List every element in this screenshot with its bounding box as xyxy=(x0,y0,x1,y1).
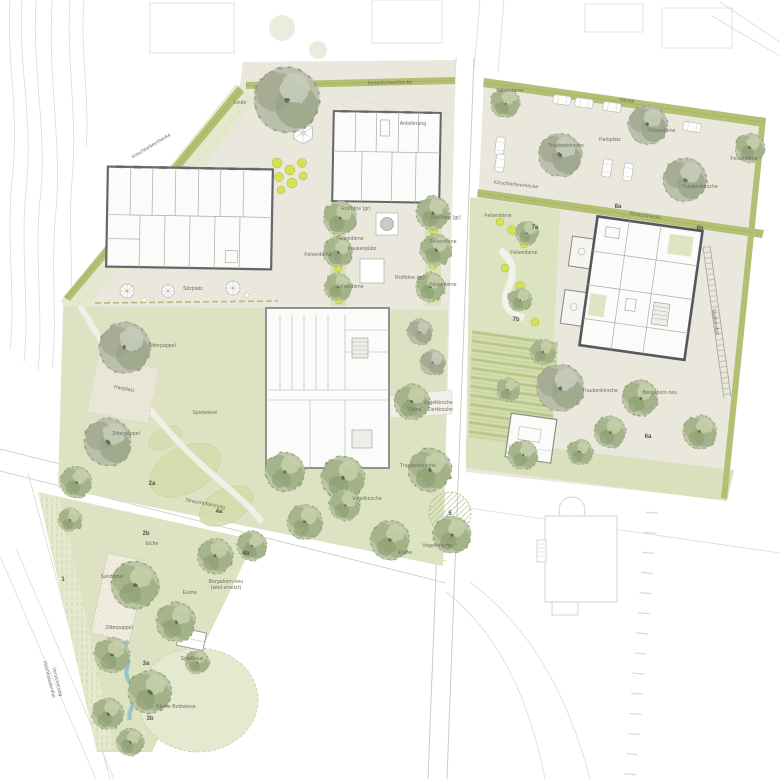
stair-core xyxy=(352,338,368,358)
inner-court-green xyxy=(588,293,607,317)
marker-8b: 8b xyxy=(696,226,703,232)
marker-3b: 3b xyxy=(146,716,153,722)
context-street-line xyxy=(474,0,504,72)
label-bergahorn-2: (wird ersetzt) xyxy=(211,585,242,591)
tree-icon xyxy=(407,319,433,345)
label-felsenbirne: Felsenbirne xyxy=(429,239,456,245)
neighbor-house-outline xyxy=(537,497,617,615)
site-plan-svg: Linde Kirschlorbeerhecke Kirschlorbeerhe… xyxy=(0,0,780,779)
marker-7b: 7b xyxy=(512,317,519,323)
contour-line xyxy=(69,0,74,298)
label-eiche: Eiche xyxy=(145,541,158,547)
tree-icon xyxy=(111,561,159,609)
tree-icon xyxy=(416,196,450,230)
label-zitterpappel: Zitterpappel xyxy=(105,625,133,631)
label-anlieferung: Anlieferung xyxy=(400,121,427,127)
contour-line xyxy=(9,0,14,350)
label-traubenkirsche: Traubenkirsche xyxy=(582,388,618,394)
neighbor-building-outline xyxy=(150,3,234,53)
tree-icon xyxy=(530,339,556,365)
label-felsenbirne: Felsenbirne xyxy=(496,88,523,94)
building-kita-floorplan xyxy=(106,167,273,270)
marker-7a: 7a xyxy=(532,225,539,231)
label-traubenkirsche: Traubenkirsche xyxy=(548,143,584,149)
contour-line xyxy=(21,0,28,362)
context-tree xyxy=(309,41,327,59)
label-felsenbirne: Felsenbirne xyxy=(510,250,537,256)
label-felsenbirne: Felsenbirne xyxy=(429,282,456,288)
play-dot xyxy=(245,293,249,297)
label-bergahorn: Bergahorn neu xyxy=(643,390,678,396)
label-esche: Esche xyxy=(398,550,413,556)
label-felsenbirne: Felsenbirne xyxy=(648,128,675,134)
label-felsenbirne: Felsenbirne xyxy=(730,156,757,162)
context-street-line xyxy=(468,508,780,553)
tree-icon xyxy=(92,698,124,730)
label-felsenbirne: Felsenbirne xyxy=(336,284,363,290)
label-traubenkirsche: Traubenkirsche xyxy=(682,184,718,190)
neighbor-building-outline xyxy=(372,0,442,43)
tree-icon xyxy=(197,538,233,574)
tree-icon xyxy=(536,364,584,412)
label-felsenbirne: Felsenbirne xyxy=(484,213,511,219)
tree-icon xyxy=(116,728,144,756)
umbrella-play-icon xyxy=(120,284,134,298)
label-vogelkirsche-entrance: Vogelkirsche xyxy=(423,400,453,406)
marker-8a: 8a xyxy=(615,204,622,210)
tree-icon xyxy=(58,508,82,532)
site-plan: Linde Kirschlorbeerhecke Kirschlorbeerhe… xyxy=(0,0,780,779)
tree-icon xyxy=(663,158,707,202)
label-parkplatz: Parkplatz xyxy=(599,137,621,143)
play-dot xyxy=(150,294,154,298)
tree-icon xyxy=(287,504,323,540)
inner-court-green xyxy=(667,234,694,257)
label-pausenplatz: Pausenplatz xyxy=(348,246,377,252)
tree-icon xyxy=(496,378,520,402)
tree-icon xyxy=(594,416,626,448)
label-felsenbirne: Felsenbirne xyxy=(304,252,331,258)
tree-icon xyxy=(508,288,532,312)
tree-icon xyxy=(628,105,668,145)
tree-icon xyxy=(265,452,305,492)
marker-2b: 2b xyxy=(142,531,149,537)
label-felsenbirne: Felsenbirne xyxy=(336,236,363,242)
label-hedge-topleft: Kirschlorbeerhecke xyxy=(131,132,172,160)
context-parking-ticks xyxy=(630,512,652,779)
label-traubenkirsche: Traubenkirsche xyxy=(400,463,436,469)
label-sitzplatz: Sitzplatz xyxy=(183,286,203,292)
label-esche: Esche xyxy=(183,590,198,596)
play-dot xyxy=(142,298,146,302)
tree-icon xyxy=(567,439,593,465)
label-hedge-top: Kirschlorbeerhecke xyxy=(368,79,413,86)
label-zitterpappel: Zitterpappel xyxy=(148,343,176,349)
contour-line xyxy=(51,0,57,368)
building-hall-floorplan xyxy=(266,308,389,468)
tree-icon xyxy=(420,350,446,376)
tree-icon xyxy=(622,380,658,416)
label-zitterpappel: Zitterpappel xyxy=(112,431,140,437)
context-street-line xyxy=(446,592,545,779)
marker-2a: 2a xyxy=(149,481,156,487)
umbrella-play-icon xyxy=(162,285,175,298)
planter-box xyxy=(360,259,384,283)
tree-icon xyxy=(156,602,196,642)
label-bolzwiese: Kleine Bolzwiese xyxy=(156,704,196,710)
neighbor-building-outline xyxy=(662,8,732,48)
tree-icon xyxy=(84,418,132,466)
marker-4a: 4a xyxy=(216,509,223,515)
tree-icon xyxy=(185,650,209,674)
tree-icon xyxy=(508,440,538,470)
marker-3a: 3a xyxy=(143,661,150,667)
label-spielhaus: Spielhaus xyxy=(181,656,204,662)
tree-icon xyxy=(683,415,717,449)
neighbor-building-outline xyxy=(585,4,643,32)
tree-icon xyxy=(60,466,92,498)
fountain-icon xyxy=(381,218,394,231)
tree-icon xyxy=(99,322,151,374)
context-tree xyxy=(269,15,295,41)
label-linde: Linde xyxy=(234,100,247,106)
marker-4b: 4b xyxy=(242,551,249,557)
label-sandspiel: Sandspiel xyxy=(101,574,124,580)
play-dot xyxy=(254,288,258,292)
label-spielwiese: Spielwiese xyxy=(193,410,218,416)
tree-icon xyxy=(538,133,582,177)
marker-6a: 6a xyxy=(645,434,652,440)
tree-icon xyxy=(254,67,320,133)
label-vogelkirsche: Vogelkirsche xyxy=(352,496,382,502)
label-rotfoehre: Rotföhre (gr) xyxy=(431,215,461,221)
tree-icon xyxy=(408,448,452,492)
label-rotfoehre: Rotföhre (gr) xyxy=(341,206,371,212)
contour-line xyxy=(35,0,42,370)
umbrella-play-icon xyxy=(226,281,240,295)
label-rotfoehre: Rotföhre (gr) xyxy=(395,275,425,281)
stair-core xyxy=(352,430,372,448)
contour-line xyxy=(83,0,87,148)
label-vogelkirsche-entrance-2: 'Plena' - Zierkirsche xyxy=(407,407,453,413)
tree-icon xyxy=(94,637,130,673)
label-vogelkirsche: Vogelkirsche xyxy=(422,543,452,549)
tree-icon xyxy=(329,489,361,521)
